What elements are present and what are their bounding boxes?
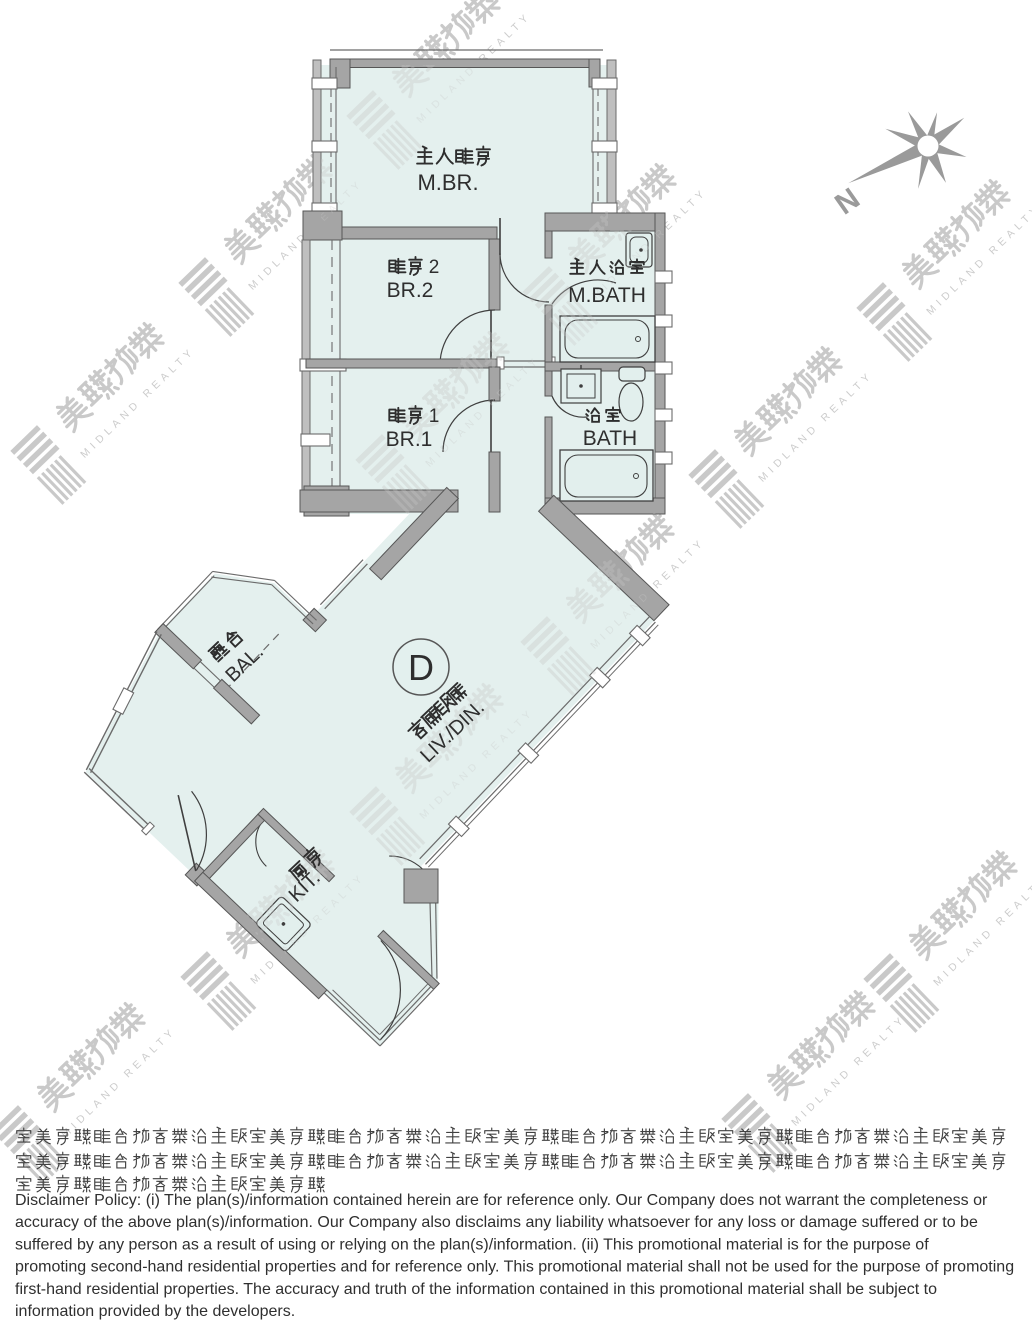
svg-text:promoting second-hand resident: promoting second-hand residential proper… [15, 1259, 1014, 1276]
svg-text:information provided by the de: information provided by the developers. [15, 1303, 295, 1320]
svg-text:D: D [408, 647, 434, 688]
svg-text:1: 1 [429, 406, 440, 427]
svg-text:2: 2 [429, 257, 440, 278]
svg-text:accuracy of the above plan(s)/: accuracy of the above plan(s)/informatio… [15, 1214, 978, 1231]
svg-text:suffered by any person as a re: suffered by any person as a result of us… [15, 1236, 929, 1253]
svg-text:first-hand residential propert: first-hand residential properties. The a… [15, 1281, 937, 1298]
svg-text:M.BR.: M.BR. [417, 170, 478, 195]
svg-text:BR.1: BR.1 [386, 428, 433, 451]
svg-text:BR.2: BR.2 [387, 279, 434, 302]
svg-text:Disclaimer Policy: (i) The pla: Disclaimer Policy: (i) The plan(s)/infor… [15, 1192, 988, 1209]
svg-text:BATH: BATH [583, 427, 637, 450]
svg-text:M.BATH: M.BATH [568, 284, 646, 307]
